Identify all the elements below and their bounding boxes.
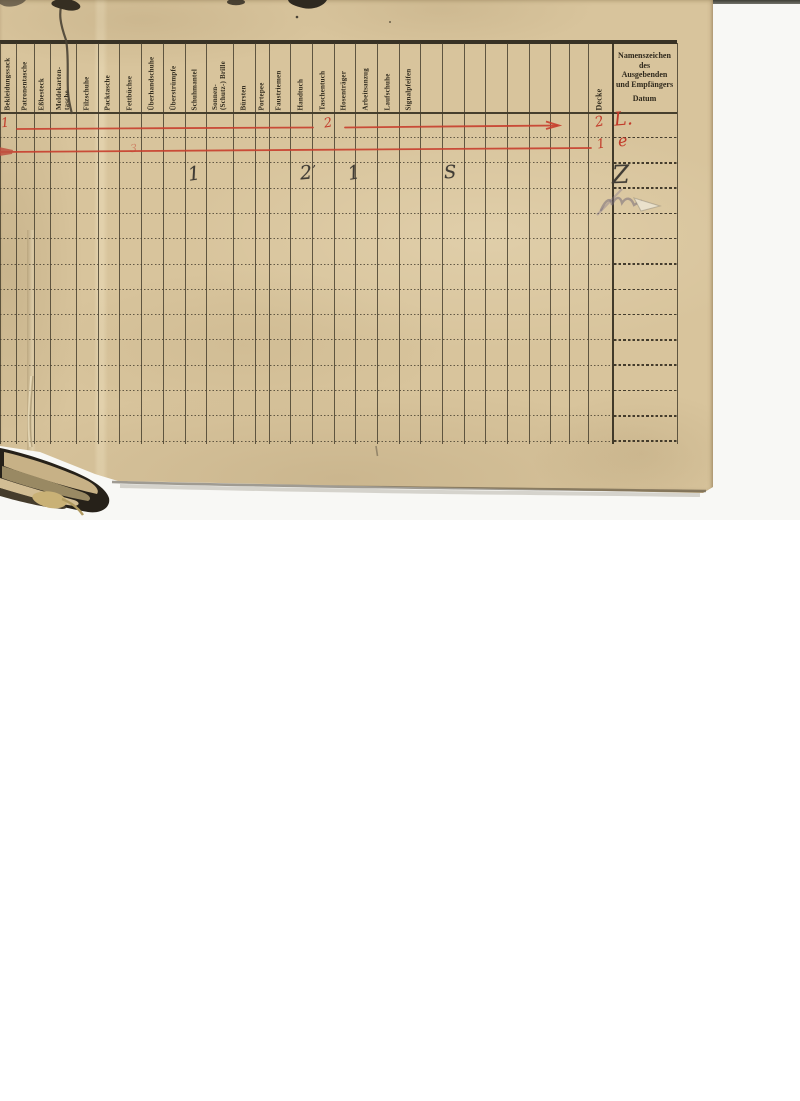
column-label: Bekleidungssack (4, 57, 12, 110)
column-header-laufschuhe: Laufschuhe (377, 43, 399, 112)
screenshot-canvas: BekleidungssackPatronentascheEßbesteckMe… (0, 0, 800, 1101)
column-label: Eßbesteck (38, 77, 46, 110)
column-line (569, 43, 570, 444)
pencil-entry: 1 (187, 164, 202, 184)
namenszeichen-header-line: Namenszeichen (618, 51, 671, 61)
column-header-eßbesteck: Eßbesteck (34, 43, 50, 112)
column-header-bürsten: Bürsten (233, 43, 255, 112)
namenszeichen-header-line: und Empfängers (616, 80, 673, 90)
row-dotted-line-namenszeichen (614, 213, 677, 215)
header-bottom-border (0, 112, 677, 114)
scan-background: BekleidungssackPatronentascheEßbesteckMe… (0, 0, 800, 520)
column-label: Patronentasche (21, 61, 29, 110)
row-dotted-line-namenszeichen (614, 440, 677, 442)
column-header-faustriemen: Faustriemen (269, 43, 290, 112)
row-dotted-line-namenszeichen (614, 289, 677, 291)
ledger-page: BekleidungssackPatronentascheEßbesteckMe… (0, 0, 713, 493)
column-header-überhandschuhe: Überhandschuhe (141, 43, 163, 112)
column-label: Decke (596, 88, 605, 110)
column-line (507, 43, 508, 444)
column-label: Filzschuhe (83, 76, 91, 110)
thread-knot-bottom (32, 491, 67, 508)
column-label: Sonnen- (Schutz-) Brille (212, 61, 227, 110)
column-line (677, 43, 678, 444)
column-line (550, 43, 551, 444)
row-dotted-line (0, 390, 613, 391)
column-label: Überstrümpfe (170, 65, 178, 110)
column-header-schuhmantel: Schuhmantel (185, 43, 206, 112)
namenszeichen-header-line: des (639, 61, 650, 71)
column-label: Portepee (258, 82, 266, 110)
pencil-entry: 1 (346, 163, 361, 184)
scanner-edge-strip (711, 0, 800, 4)
column-header-signalpfeifen: Signalpfeifen (399, 43, 420, 112)
column-label: Überhandschuhe (148, 56, 156, 110)
row-dotted-line-namenszeichen (614, 238, 677, 240)
column-header-hosenträger: Hosenträger (334, 43, 355, 112)
row-dotted-line (0, 441, 613, 442)
row-dotted-line (0, 339, 613, 340)
column-label: Faustriemen (276, 70, 284, 110)
row-dotted-line (0, 289, 613, 290)
column-label: Bürsten (240, 85, 248, 110)
row-dotted-line-namenszeichen (614, 339, 677, 341)
pencil-entry: S (444, 164, 457, 183)
column-header-portepee: Portepee (255, 43, 269, 112)
pencil-entry: 2 (299, 164, 313, 184)
column-line (464, 43, 465, 444)
red-ink-entry: 1 (596, 137, 606, 151)
column-label: Laufschuhe (384, 73, 392, 110)
pencil-entry: Z (612, 162, 630, 188)
column-label: Fettbüchse (126, 75, 134, 110)
red-ink-entry: 3 (130, 143, 138, 154)
red-ink-entry: 2 (323, 116, 333, 130)
red-ink-entry: L. (613, 109, 633, 130)
column-line (485, 43, 486, 444)
column-label: Handtuch (297, 78, 305, 110)
row-dotted-line (0, 137, 613, 138)
row-dotted-line-namenszeichen (614, 314, 677, 316)
column-header-decke: Decke (588, 43, 612, 112)
row-dotted-line-namenszeichen (614, 390, 677, 392)
column-header-packtasche: Packtasche (98, 43, 119, 112)
row-dotted-line (0, 213, 613, 214)
datum-label: Datum (633, 94, 657, 104)
column-header-bekleidungssack: Bekleidungssack (0, 43, 16, 112)
row-dotted-line (0, 188, 613, 189)
column-header-namenszeichen: NamenszeichendesAusgebendenund Empfänger… (614, 43, 675, 112)
column-line (442, 43, 443, 444)
column-line (420, 43, 421, 444)
row-dotted-line (0, 238, 613, 239)
column-header-taschentuch: Taschentuch (312, 43, 334, 112)
column-header-meldekarten: Meldekarten- tasche (50, 43, 76, 112)
row-dotted-line (0, 264, 613, 265)
column-header-filzschuhe: Filzschuhe (76, 43, 98, 112)
pencil-entry: ’ (312, 164, 316, 176)
row-dotted-line (0, 415, 613, 416)
row-dotted-line (0, 314, 613, 315)
row-dotted-line-namenszeichen (614, 364, 677, 366)
column-label: Arbeitsanzug (362, 68, 370, 110)
column-header-fettbüchse: Fettbüchse (119, 43, 141, 112)
column-label: Schuhmantel (192, 69, 200, 111)
column-line (529, 43, 530, 444)
column-header-handtuch: Handtuch (290, 43, 312, 112)
row-dotted-line-namenszeichen (614, 263, 677, 265)
column-label: Hosenträger (341, 70, 349, 110)
column-header-sonnen: Sonnen- (Schutz-) Brille (206, 43, 233, 112)
row-dotted-line (0, 365, 613, 366)
column-header-überstrümpfe: Überstrümpfe (163, 43, 185, 112)
red-ink-entry: 2 (594, 114, 606, 130)
column-label: Signalpfeifen (406, 68, 414, 110)
row-dotted-line-namenszeichen (614, 415, 677, 417)
column-label: Taschentuch (319, 70, 327, 110)
column-label: Packtasche (105, 75, 113, 110)
red-ink-entry: 1 (0, 117, 10, 131)
column-header-patronentasche: Patronentasche (16, 43, 34, 112)
column-label: Meldekarten- tasche (56, 67, 71, 110)
red-ink-entry: e (617, 133, 628, 150)
column-header-arbeitsanzug: Arbeitsanzug (355, 43, 377, 112)
namenszeichen-header-line: Ausgebenden (622, 70, 668, 80)
